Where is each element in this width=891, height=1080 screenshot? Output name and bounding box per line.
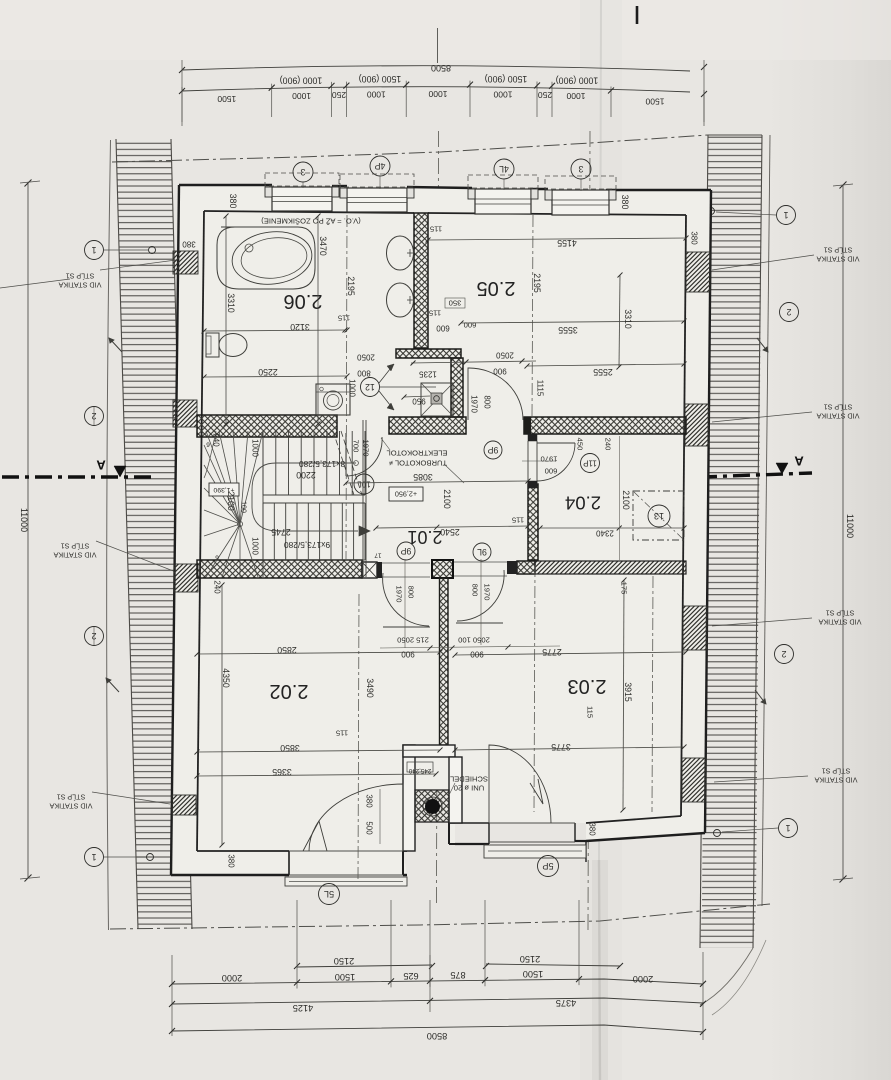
svg-text:500: 500 xyxy=(365,821,374,835)
svg-text:1000 (900): 1000 (900) xyxy=(280,76,323,86)
svg-text:1000: 1000 xyxy=(251,439,260,457)
svg-text:2540: 2540 xyxy=(440,527,460,537)
svg-text:UNI ø 20: UNI ø 20 xyxy=(454,784,484,793)
svg-text:1000: 1000 xyxy=(367,90,386,100)
svg-text:6: 6 xyxy=(215,554,219,561)
svg-text:800: 800 xyxy=(483,395,492,409)
svg-text:900: 900 xyxy=(493,367,507,376)
svg-text:9P: 9P xyxy=(487,445,498,455)
svg-text:3850: 3850 xyxy=(280,743,300,753)
svg-text:115: 115 xyxy=(512,516,524,525)
svg-text:380: 380 xyxy=(228,194,238,209)
svg-text:2.06: 2.06 xyxy=(284,290,323,312)
svg-text:2250: 2250 xyxy=(258,367,278,377)
svg-text:10L: 10L xyxy=(357,480,371,489)
svg-text:2: 2 xyxy=(786,307,791,317)
svg-text:215 2050: 215 2050 xyxy=(397,636,429,645)
svg-text:3085: 3085 xyxy=(413,472,433,482)
svg-text:STĹP S1: STĹP S1 xyxy=(824,403,853,412)
svg-text:1500 (900): 1500 (900) xyxy=(485,74,528,84)
svg-text:9x173,5/280: 9x173,5/280 xyxy=(284,540,330,550)
svg-text:1500 (900): 1500 (900) xyxy=(359,74,402,84)
svg-text:ELEKTROKOTOL: ELEKTROKOTOL xyxy=(386,449,447,458)
svg-text:380: 380 xyxy=(588,822,597,836)
svg-text:11000: 11000 xyxy=(19,508,29,532)
svg-text:VID STATIKA: VID STATIKA xyxy=(53,551,96,560)
svg-text:380: 380 xyxy=(690,231,699,245)
svg-text:TURBOKOTOL ≠: TURBOKOTOL ≠ xyxy=(389,459,447,468)
svg-text:900: 900 xyxy=(470,650,484,659)
svg-text:2.05: 2.05 xyxy=(477,277,516,299)
svg-text:1970: 1970 xyxy=(483,584,492,601)
svg-text:350: 350 xyxy=(449,299,462,308)
svg-text:600: 600 xyxy=(464,321,477,330)
svg-text:2850: 2850 xyxy=(277,645,297,655)
svg-text:12: 12 xyxy=(365,382,375,392)
svg-text:900: 900 xyxy=(401,650,415,659)
svg-text:115: 115 xyxy=(430,225,442,234)
svg-text:3310: 3310 xyxy=(226,293,236,313)
svg-text:(V.O. = AŽ PO ZOŠIKMENIE): (V.O. = AŽ PO ZOŠIKMENIE) xyxy=(261,217,361,226)
svg-text:1: 1 xyxy=(91,245,96,255)
svg-text:450: 450 xyxy=(576,438,585,451)
svg-text:1500: 1500 xyxy=(645,97,664,107)
svg-text:115: 115 xyxy=(338,314,350,323)
svg-text:A: A xyxy=(794,454,804,469)
svg-text:6: 6 xyxy=(206,441,210,448)
svg-text:STĹP S1: STĹP S1 xyxy=(61,542,90,551)
svg-text:3: 3 xyxy=(578,164,583,174)
svg-text:SCHIEDEL: SCHIEDEL xyxy=(450,775,488,784)
svg-text:2.02: 2.02 xyxy=(270,680,309,702)
svg-text:3365: 3365 xyxy=(272,767,292,777)
svg-text:VID STATIKA: VID STATIKA xyxy=(814,776,857,785)
svg-text:2050 100: 2050 100 xyxy=(458,636,490,645)
svg-text:11000: 11000 xyxy=(845,514,855,538)
svg-text:2340: 2340 xyxy=(596,529,614,538)
svg-text:1: 1 xyxy=(783,210,788,220)
svg-text:3555: 3555 xyxy=(558,325,578,335)
svg-text:1970: 1970 xyxy=(541,455,558,464)
svg-text:4125: 4125 xyxy=(293,1003,313,1013)
svg-text:2745: 2745 xyxy=(271,527,291,537)
svg-text:380: 380 xyxy=(227,854,236,868)
svg-text:950: 950 xyxy=(412,397,426,406)
svg-text:8x173,5/280: 8x173,5/280 xyxy=(299,459,345,469)
svg-text:2195: 2195 xyxy=(532,273,542,293)
svg-text:2000: 2000 xyxy=(633,974,653,984)
svg-text:3: 3 xyxy=(300,167,305,177)
svg-text:2.03: 2.03 xyxy=(568,675,607,697)
svg-text:3490: 3490 xyxy=(365,678,375,698)
svg-text:2100: 2100 xyxy=(226,491,236,511)
svg-text:800: 800 xyxy=(471,584,480,597)
svg-text:1235: 1235 xyxy=(419,370,437,379)
svg-text:11P: 11P xyxy=(583,459,597,468)
svg-text:13: 13 xyxy=(654,511,664,521)
svg-text:3915: 3915 xyxy=(623,682,633,702)
svg-text:250: 250 xyxy=(538,90,552,100)
svg-text:3120: 3120 xyxy=(290,322,310,332)
svg-text:8500: 8500 xyxy=(431,63,451,73)
svg-text:4L: 4L xyxy=(499,164,509,174)
svg-text:100: 100 xyxy=(240,501,247,513)
svg-text:1000: 1000 xyxy=(251,537,260,555)
svg-text:800: 800 xyxy=(357,369,371,378)
svg-text:2.04: 2.04 xyxy=(565,493,601,514)
svg-text:4350: 4350 xyxy=(221,668,231,688)
svg-text:4P: 4P xyxy=(374,161,385,171)
svg-text:1000: 1000 xyxy=(292,91,311,101)
svg-text:2195: 2195 xyxy=(346,276,356,296)
svg-text:VID STATIKA: VID STATIKA xyxy=(58,281,101,290)
svg-text:1000: 1000 xyxy=(493,89,512,99)
svg-text:VID STATIKA: VID STATIKA xyxy=(816,412,859,421)
svg-text:1000: 1000 xyxy=(348,379,357,397)
svg-text:VID STATIKA: VID STATIKA xyxy=(816,255,859,264)
svg-text:2200: 2200 xyxy=(296,470,316,480)
svg-text:1: 1 xyxy=(785,823,790,833)
svg-text:175: 175 xyxy=(620,582,629,595)
svg-text:700: 700 xyxy=(352,440,361,453)
svg-text:VID STATIKA: VID STATIKA xyxy=(49,802,92,811)
svg-text:115: 115 xyxy=(336,729,348,738)
svg-text:240: 240 xyxy=(604,438,613,451)
svg-text:2: 2 xyxy=(781,649,786,659)
svg-text:240: 240 xyxy=(212,433,221,447)
svg-text:2050: 2050 xyxy=(357,353,375,362)
svg-text:380: 380 xyxy=(182,240,196,249)
svg-text:5P: 5P xyxy=(542,861,553,871)
svg-text:2100: 2100 xyxy=(621,490,631,510)
svg-text:STĹP S1: STĹP S1 xyxy=(57,793,86,802)
svg-text:STĹP S1: STĹP S1 xyxy=(824,246,853,255)
svg-text:A: A xyxy=(96,458,106,473)
svg-text:250: 250 xyxy=(332,90,346,100)
svg-text:600: 600 xyxy=(545,467,558,476)
svg-text:2100: 2100 xyxy=(442,489,452,509)
svg-text:2.01: 2.01 xyxy=(407,527,442,547)
svg-text:4375: 4375 xyxy=(556,998,576,1008)
svg-text:1970: 1970 xyxy=(470,395,479,413)
svg-text:5L: 5L xyxy=(324,889,334,899)
svg-text:9L: 9L xyxy=(477,547,487,557)
svg-text:STĹP S1: STĹP S1 xyxy=(822,767,851,776)
svg-text:1000: 1000 xyxy=(566,91,585,101)
svg-text:+2,950: +2,950 xyxy=(395,490,417,499)
svg-text:3470: 3470 xyxy=(318,236,328,256)
svg-text:115: 115 xyxy=(429,309,441,318)
svg-text:17: 17 xyxy=(374,552,382,559)
svg-text:2050: 2050 xyxy=(496,351,514,360)
svg-text:VID STATIKA: VID STATIKA xyxy=(818,618,861,627)
svg-text:1115: 1115 xyxy=(536,380,545,397)
svg-text:380: 380 xyxy=(620,195,630,210)
svg-text:380: 380 xyxy=(365,794,374,808)
svg-text:625: 625 xyxy=(403,971,418,981)
svg-text:1500: 1500 xyxy=(523,969,543,979)
svg-text:115: 115 xyxy=(586,706,595,718)
svg-text:1000: 1000 xyxy=(428,89,447,99)
svg-text:4155: 4155 xyxy=(557,238,577,248)
svg-text:800: 800 xyxy=(407,586,416,599)
svg-text:8500: 8500 xyxy=(427,1031,447,1041)
svg-text:STĹP S1: STĹP S1 xyxy=(826,609,855,618)
svg-text:875: 875 xyxy=(450,970,465,980)
svg-text:1970: 1970 xyxy=(395,586,404,603)
svg-text:3775: 3775 xyxy=(551,742,571,752)
svg-text:1: 1 xyxy=(91,852,96,862)
svg-text:1970: 1970 xyxy=(362,440,371,457)
svg-text:1000 (900): 1000 (900) xyxy=(556,76,599,86)
svg-text:2000: 2000 xyxy=(222,973,242,983)
svg-text:2555: 2555 xyxy=(593,367,613,377)
svg-text:600: 600 xyxy=(436,324,450,333)
svg-text:1500: 1500 xyxy=(217,94,236,104)
svg-text:2775: 2775 xyxy=(542,647,562,657)
svg-text:1500: 1500 xyxy=(335,972,355,982)
svg-text:245,240: 245,240 xyxy=(408,767,431,774)
svg-text:3310: 3310 xyxy=(623,309,633,329)
svg-text:2150: 2150 xyxy=(334,956,354,966)
svg-text:2150: 2150 xyxy=(520,954,540,964)
